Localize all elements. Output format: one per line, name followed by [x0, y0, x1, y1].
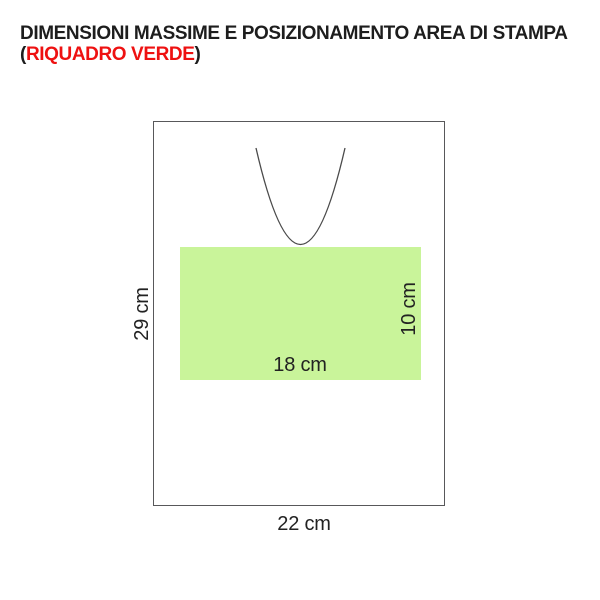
title-line-1: DIMENSIONI MASSIME E POSIZIONAMENTO AREA…	[20, 23, 585, 44]
page-title: DIMENSIONI MASSIME E POSIZIONAMENTO AREA…	[20, 23, 585, 65]
title-line-2: (RIQUADRO VERDE)	[20, 44, 585, 65]
print-area-diagram: DIMENSIONI MASSIME E POSIZIONAMENTO AREA…	[0, 0, 600, 600]
print-area-width-label: 18 cm	[250, 353, 350, 377]
print-area-height-label: 10 cm	[397, 259, 421, 359]
bag-width-label: 22 cm	[254, 512, 354, 536]
bag-height-label: 29 cm	[130, 264, 154, 364]
title-paren-close: )	[195, 44, 201, 65]
title-highlight: RIQUADRO VERDE	[26, 44, 195, 65]
